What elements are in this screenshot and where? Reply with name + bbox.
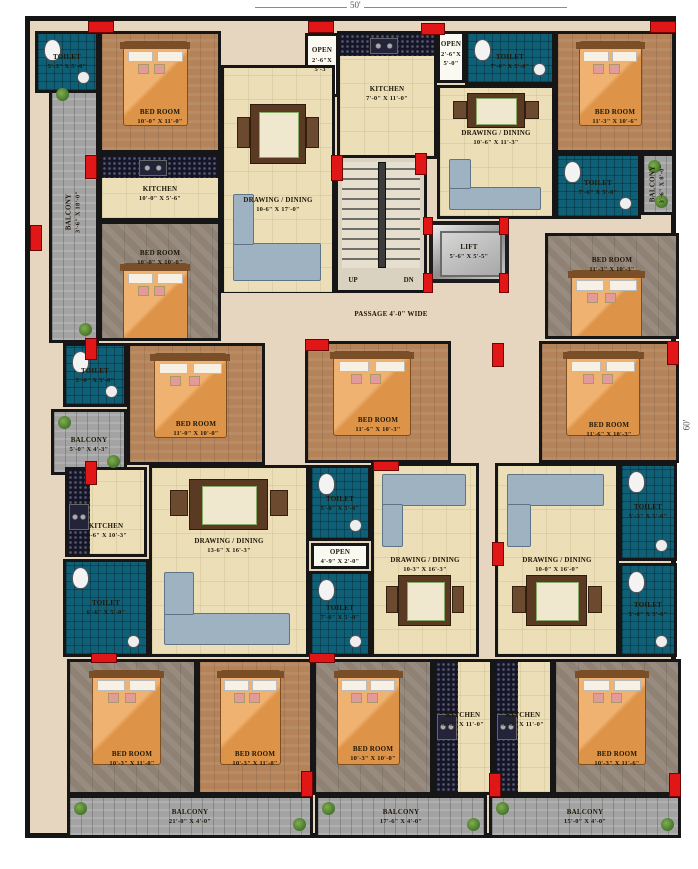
room-label: BED ROOM10'-3" X 11'-0" — [200, 750, 310, 769]
room-label: DRAWING / DINING10-3" X 16'-3" — [374, 556, 476, 575]
column-marker — [30, 225, 42, 251]
room-wc-R2: TOILET5'-0" X 5'-6" — [619, 563, 677, 657]
room-dd-R: DRAWING / DINING10-0" X 16'-0" — [495, 463, 619, 657]
room-label: DRAWING / DINING10-6" X 17'-0" — [224, 196, 332, 215]
chair-icon — [237, 117, 250, 148]
sofa-icon — [382, 504, 402, 547]
bed-icon — [123, 263, 188, 341]
column-marker — [415, 153, 427, 175]
room-wc-T: TOILET7'-6" X 5'-0" — [465, 31, 555, 85]
sofa-icon — [382, 474, 466, 506]
toilet-sink-icon — [349, 519, 362, 532]
column-marker — [331, 155, 343, 181]
room-label: BED ROOM10'-3" X 11'-6" — [556, 750, 678, 769]
room-bed-C: BED ROOM11'-6" X 10'-3" — [305, 341, 451, 463]
toilet-sink-icon — [77, 71, 90, 84]
room-label: TOILET7'-6" X 5'-0" — [468, 53, 552, 72]
plant-icon — [56, 88, 69, 101]
room-label: OPEN4'-9" X 2'-0" — [314, 548, 366, 567]
column-marker — [492, 343, 504, 367]
room-label: TOILET6'-6" X 5'-0" — [66, 599, 146, 618]
floor-plan: BALCONY3'-6" X 18'-0"TOILET5'-3" X 5'-0"… — [25, 16, 676, 838]
sofa-icon — [233, 243, 321, 281]
room-bed-TR: BED ROOM11'-3" X 10'-6" — [555, 31, 675, 153]
room-passage: PASSAGE 4'-0" WIDE — [221, 293, 561, 339]
toilet-sink-icon — [349, 635, 362, 648]
chair-icon — [588, 586, 602, 612]
room-label: BED ROOM11'-3" X 10'-6" — [558, 108, 672, 127]
room-bed-R3: BED ROOM11'-6" X 10'-3" — [539, 341, 679, 463]
room-kit-B2: KITCHEN5'-3" X 11'-0" — [493, 659, 553, 795]
dining-table-icon — [398, 575, 451, 626]
room-label: TOILET5'-0" X 5'-6" — [622, 601, 674, 620]
bed-icon — [571, 270, 642, 339]
room-balc-TR: BALCONY3'-6" X 8'-0" — [641, 153, 675, 215]
column-marker — [423, 217, 433, 235]
dining-table-icon — [526, 575, 587, 626]
room-bed-L3: BED ROOM11'-0" X 10'-0" — [127, 343, 265, 465]
right-dimension-label: 60' — [681, 420, 691, 431]
room-label: KITCHEN10'-0" X 5'-6" — [102, 185, 218, 204]
chair-icon — [170, 490, 187, 516]
room-label: KITCHEN7'-0" X 11'-0" — [340, 85, 434, 104]
column-marker — [489, 773, 501, 797]
room-label: BALCONY17'-6" X 4'-0" — [318, 808, 484, 827]
room-wc-R1: TOILET5'-3" X 5'-0" — [619, 463, 677, 561]
room-bed-L2: BED ROOM10'-0" X 10'-0" — [99, 221, 221, 341]
room-label: BALCONY3'-6" X 18'-0" — [65, 132, 84, 292]
room-balc-B2: BALCONY17'-6" X 4'-0" — [315, 795, 487, 838]
chair-icon — [306, 117, 319, 148]
toilet-commode-icon — [72, 567, 89, 589]
column-marker — [309, 653, 335, 663]
column-marker — [85, 155, 97, 179]
room-open-T: OPEN2'-6"X 5'-0" — [437, 31, 465, 83]
room-wc-C1: TOILET5'-0" X 5'-6" — [309, 465, 371, 541]
sofa-icon — [449, 159, 471, 189]
room-label: BED ROOM11'-3" X 10'-3" — [548, 256, 676, 275]
room-lift: LIFT5'-6" X 5'-5" — [429, 221, 509, 283]
toilet-sink-icon — [619, 197, 632, 210]
room-label: KITCHEN5'-3" X 11'-0" — [436, 711, 490, 730]
dining-table-icon — [189, 479, 268, 529]
room-label: TOILET7'-6" X 5'-0" — [312, 604, 368, 623]
room-label: TOILET5'-0" X 5'-0" — [66, 367, 124, 386]
room-dd-C: DRAWING / DINING10-3" X 16'-3" — [371, 463, 479, 657]
room-kit-T: KITCHEN7'-0" X 11'-0" — [337, 31, 437, 159]
chair-icon — [525, 101, 538, 120]
room-kit-L: KITCHEN10'-0" X 5'-6" — [99, 153, 221, 221]
column-marker — [308, 21, 334, 33]
toilet-sink-icon — [127, 635, 140, 648]
room-bed-B2: BED ROOM10'-3" X 11'-0" — [197, 659, 313, 795]
plant-icon — [58, 416, 71, 429]
column-marker — [85, 461, 97, 485]
room-label: BED ROOM10'-3" X 10'-0" — [316, 745, 430, 764]
room-label: BALCONY5'-0" X 4'-3" — [54, 436, 124, 455]
room-label: DRAWING / DINING10-0" X 16'-0" — [498, 556, 616, 575]
room-kit-BL: KITCHEN6'-6" X 10'-3" — [65, 467, 147, 557]
room-label: BED ROOM10'-0" X 11'-0" — [102, 108, 218, 127]
dining-table-icon — [250, 104, 306, 164]
room-label: BALCONY15'-0" X 4'-0" — [492, 808, 678, 827]
room-dd-BL: DRAWING / DINING13-6" X 16'-3" — [149, 465, 309, 657]
plant-icon — [107, 455, 120, 468]
top-dimension-label: 50' — [347, 0, 364, 10]
toilet-commode-icon — [318, 579, 335, 601]
room-bed-TL: BED ROOM10'-0" X 11'-0" — [99, 31, 221, 153]
top-dimension-line — [255, 7, 567, 8]
room-dd-L: DRAWING / DINING10-6" X 17'-0" — [221, 65, 335, 295]
chair-icon — [452, 586, 464, 612]
column-marker — [492, 542, 504, 566]
column-marker — [373, 461, 399, 471]
stair-rail — [378, 162, 387, 268]
room-label: TOILET7'-6" X 5'-0" — [558, 179, 638, 198]
chair-icon — [270, 490, 287, 516]
column-marker — [91, 653, 117, 663]
column-marker — [669, 773, 681, 797]
stove-icon — [370, 38, 398, 54]
room-label: DRAWING / DINING13-6" X 16'-3" — [152, 537, 306, 556]
sofa-icon — [164, 572, 194, 615]
room-bed-R2: BED ROOM11'-3" X 10'-3" — [545, 233, 679, 339]
room-label: BED ROOM10'-3" X 11'-0" — [70, 750, 194, 769]
column-marker — [301, 771, 313, 797]
column-marker — [667, 341, 679, 365]
room-label: KITCHEN6'-6" X 10'-3" — [68, 522, 144, 541]
room-kit-B1: KITCHEN5'-3" X 11'-0" — [433, 659, 493, 795]
room-bed-B4: BED ROOM10'-3" X 11'-6" — [553, 659, 681, 795]
room-label: OPEN2'-6"X 5'-0" — [440, 40, 462, 68]
toilet-sink-icon — [655, 635, 668, 648]
column-marker — [423, 273, 433, 293]
dining-table-icon — [467, 93, 525, 128]
room-label: TOILET5'-3" X 5'-0" — [38, 53, 96, 72]
room-dd-T: DRAWING / DINING10'-6" X 11'-3" — [437, 85, 555, 219]
room-label: BED ROOM11'-0" X 10'-0" — [130, 420, 262, 439]
room-wc-TL: TOILET5'-3" X 5'-0" — [35, 31, 99, 93]
room-wc-BL: TOILET6'-6" X 5'-0" — [63, 559, 149, 657]
room-label: TOILET5'-0" X 5'-6" — [312, 495, 368, 514]
sofa-icon — [449, 187, 541, 209]
room-label: OPEN2'-6"X 5'-3" — [308, 46, 336, 74]
chair-icon — [453, 101, 466, 120]
stair-down-label: DN — [404, 276, 414, 284]
sofa-icon — [164, 613, 289, 645]
stair-up-label: UP — [348, 276, 357, 284]
room-bed-B1: BED ROOM10'-3" X 11'-0" — [67, 659, 197, 795]
room-label: BED ROOM10'-0" X 10'-0" — [102, 249, 218, 268]
room-label: KITCHEN5'-3" X 11'-0" — [496, 711, 550, 730]
column-marker — [88, 21, 114, 33]
column-marker — [499, 273, 509, 293]
plant-icon — [79, 323, 92, 336]
room-wc-TR: TOILET7'-6" X 5'-0" — [555, 153, 641, 219]
room-balc-B3: BALCONY15'-0" X 4'-0" — [489, 795, 681, 838]
room-open-C: OPEN4'-9" X 2'-0" — [311, 543, 369, 569]
room-label: PASSAGE 4'-0" WIDE — [221, 310, 561, 319]
floor-plan-page: { "dimensions": { "width_label": "50'", … — [0, 0, 698, 869]
room-label: BALCONY3'-6" X 8'-0" — [649, 153, 668, 215]
toilet-commode-icon — [318, 473, 335, 495]
stove-icon — [139, 160, 167, 176]
column-marker — [650, 21, 676, 33]
room-wc-C2: TOILET7'-6" X 5'-0" — [309, 571, 371, 657]
room-label: LIFT5'-6" X 5'-5" — [433, 243, 505, 262]
chair-icon — [512, 586, 526, 612]
room-balc-L: BALCONY3'-6" X 18'-0" — [49, 81, 99, 343]
column-marker — [499, 217, 509, 235]
toilet-commode-icon — [628, 571, 645, 593]
room-label: DRAWING / DINING10'-6" X 11'-3" — [440, 129, 552, 148]
toilet-commode-icon — [628, 471, 645, 493]
toilet-sink-icon — [655, 539, 668, 552]
sofa-icon — [507, 504, 530, 547]
toilet-sink-icon — [105, 385, 118, 398]
chair-icon — [386, 586, 398, 612]
room-label: BED ROOM11'-6" X 10'-3" — [308, 416, 448, 435]
room-label: BALCONY21'-0" X 4'-0" — [70, 808, 310, 827]
room-balc-B1: BALCONY21'-0" X 4'-0" — [67, 795, 313, 838]
column-marker — [421, 23, 445, 35]
room-stair: UPDN — [335, 155, 427, 293]
room-bed-B3: BED ROOM10'-3" X 10'-0" — [313, 659, 433, 795]
column-marker — [85, 338, 97, 360]
sofa-icon — [507, 474, 603, 506]
room-label: BED ROOM11'-6" X 10'-3" — [542, 421, 676, 440]
column-marker — [305, 339, 329, 351]
room-label: TOILET5'-3" X 5'-0" — [622, 503, 674, 522]
